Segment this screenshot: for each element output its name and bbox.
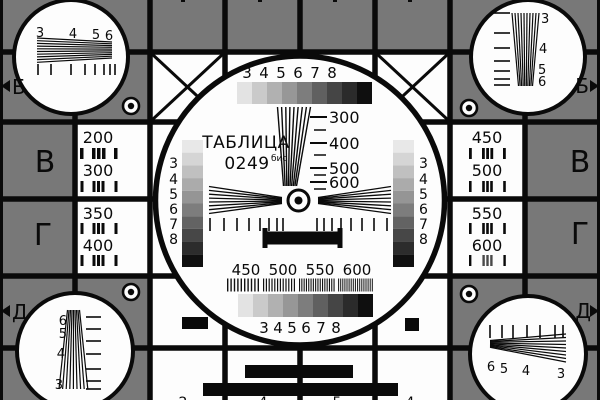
svg-text:450: 450 [232, 261, 261, 279]
gray-step [237, 82, 252, 104]
svg-text:3: 3 [169, 156, 178, 172]
gray-step [283, 294, 298, 317]
card-number-suffix: бис [271, 154, 287, 164]
side-grayscale-right-labels: 3 4 5 6 7 8 [419, 156, 428, 248]
svg-text:4: 4 [419, 172, 428, 188]
gray-step [282, 82, 297, 104]
top-grayscale [237, 82, 372, 104]
gray-step [393, 254, 414, 267]
svg-text:6: 6 [169, 202, 178, 218]
svg-text:4: 4 [259, 64, 269, 82]
letter-d-left: Д [12, 300, 28, 324]
svg-text:6: 6 [301, 319, 311, 337]
letter-g-right: Г [571, 217, 589, 252]
gray-step [182, 191, 203, 204]
gray-step [182, 229, 203, 242]
svg-text:3: 3 [419, 156, 428, 172]
svg-text:6: 6 [538, 75, 546, 90]
gray-step [393, 229, 414, 242]
gray-step [357, 82, 372, 104]
gray-step [182, 242, 203, 255]
gray-step [393, 178, 414, 191]
svg-text:5: 5 [500, 362, 508, 377]
gray-step [182, 216, 203, 229]
svg-text:4: 4 [539, 42, 547, 57]
svg-text:600: 600 [329, 173, 360, 192]
frequency-value: 600 [472, 236, 503, 255]
svg-text:8: 8 [327, 64, 337, 82]
svg-text:3: 3 [242, 64, 252, 82]
svg-text:8: 8 [419, 232, 428, 248]
corner-circle-bottom-left: 6 5 4 3 [17, 293, 133, 400]
letter-g-left: Г [34, 218, 52, 253]
svg-text:4: 4 [273, 319, 283, 337]
corner-circle-top-left: 3 4 5 6 [14, 0, 128, 114]
letter-b-left: Б [12, 75, 26, 99]
corner-circle-bottom-right: 6 5 4 3 [470, 296, 586, 400]
svg-text:8: 8 [169, 232, 178, 248]
svg-text:6: 6 [487, 360, 495, 375]
svg-text:7: 7 [316, 319, 326, 337]
cut-digit: 5 [333, 395, 342, 400]
frequency-value: 350 [83, 204, 114, 223]
side-grayscale-left [182, 140, 203, 267]
frequency-value: 300 [83, 161, 114, 180]
letter-v-left: В [35, 145, 56, 180]
svg-text:4: 4 [169, 172, 178, 188]
frequency-value: 450 [472, 128, 503, 147]
gray-step [298, 294, 313, 317]
svg-text:400: 400 [329, 134, 360, 153]
letter-b-right: Б [575, 74, 589, 98]
gray-step [182, 254, 203, 267]
letter-d-right: Д [575, 299, 591, 323]
side-grayscale-right [393, 140, 414, 267]
svg-text:300: 300 [329, 108, 360, 127]
frequency-value: 500 [472, 161, 503, 180]
bottom-grayscale [238, 294, 373, 317]
gray-step [393, 165, 414, 178]
resolution-scale-labels: 300 400 500 600 [329, 108, 360, 192]
gray-step [182, 140, 203, 153]
svg-text:3: 3 [541, 12, 549, 27]
svg-text:550: 550 [306, 261, 335, 279]
card-number: 0249 [224, 154, 269, 174]
frequency-value: 550 [472, 204, 503, 223]
gray-step [393, 242, 414, 255]
letter-v-right: В [570, 145, 591, 180]
gray-step [297, 82, 312, 104]
gray-step [393, 191, 414, 204]
svg-text:5: 5 [419, 187, 428, 203]
gray-step [393, 140, 414, 153]
gray-step [238, 294, 253, 317]
svg-text:5: 5 [276, 64, 286, 82]
test-card: 2 4 5 4 3 4 5 6 [0, 0, 600, 400]
side-grayscale-left-labels: 3 4 5 6 7 8 [169, 156, 178, 248]
main-circle: 3 4 5 6 7 8 ТАБЛИЦА 0249 бис [156, 56, 445, 345]
frequency-value: 200 [83, 128, 114, 147]
gray-step [342, 82, 357, 104]
gray-step [268, 294, 283, 317]
black-mark-right [405, 318, 419, 331]
black-mark-left [182, 317, 208, 329]
gray-step [393, 153, 414, 166]
gray-step [313, 294, 328, 317]
svg-text:3: 3 [259, 319, 269, 337]
gray-step [252, 82, 267, 104]
svg-text:7: 7 [419, 217, 428, 233]
gray-step [358, 294, 373, 317]
gray-step [182, 165, 203, 178]
gray-step [393, 216, 414, 229]
gray-step [312, 82, 327, 104]
gray-step [343, 294, 358, 317]
svg-text:500: 500 [269, 261, 298, 279]
cut-digit: 2 [179, 395, 188, 400]
gray-step [182, 178, 203, 191]
svg-text:5: 5 [169, 187, 178, 203]
gray-step [182, 204, 203, 217]
gray-step [328, 294, 343, 317]
center-target-icon [288, 190, 309, 211]
frequency-value: 400 [83, 236, 114, 255]
svg-text:5: 5 [287, 319, 297, 337]
svg-text:7: 7 [310, 64, 320, 82]
gray-step [327, 82, 342, 104]
svg-text:7: 7 [169, 217, 178, 233]
corner-circle-top-right: 3 4 5 6 [471, 0, 585, 114]
gray-step [182, 153, 203, 166]
svg-text:3: 3 [557, 367, 565, 382]
svg-text:6: 6 [419, 202, 428, 218]
cut-digit: 4 [406, 395, 415, 400]
gray-step [267, 82, 282, 104]
card-title: ТАБЛИЦА [201, 133, 290, 153]
cut-digit: 4 [259, 395, 268, 400]
svg-text:4: 4 [522, 364, 530, 379]
svg-text:600: 600 [343, 261, 372, 279]
svg-text:6: 6 [293, 64, 303, 82]
gray-step [253, 294, 268, 317]
gray-step [393, 204, 414, 217]
svg-text:8: 8 [331, 319, 341, 337]
